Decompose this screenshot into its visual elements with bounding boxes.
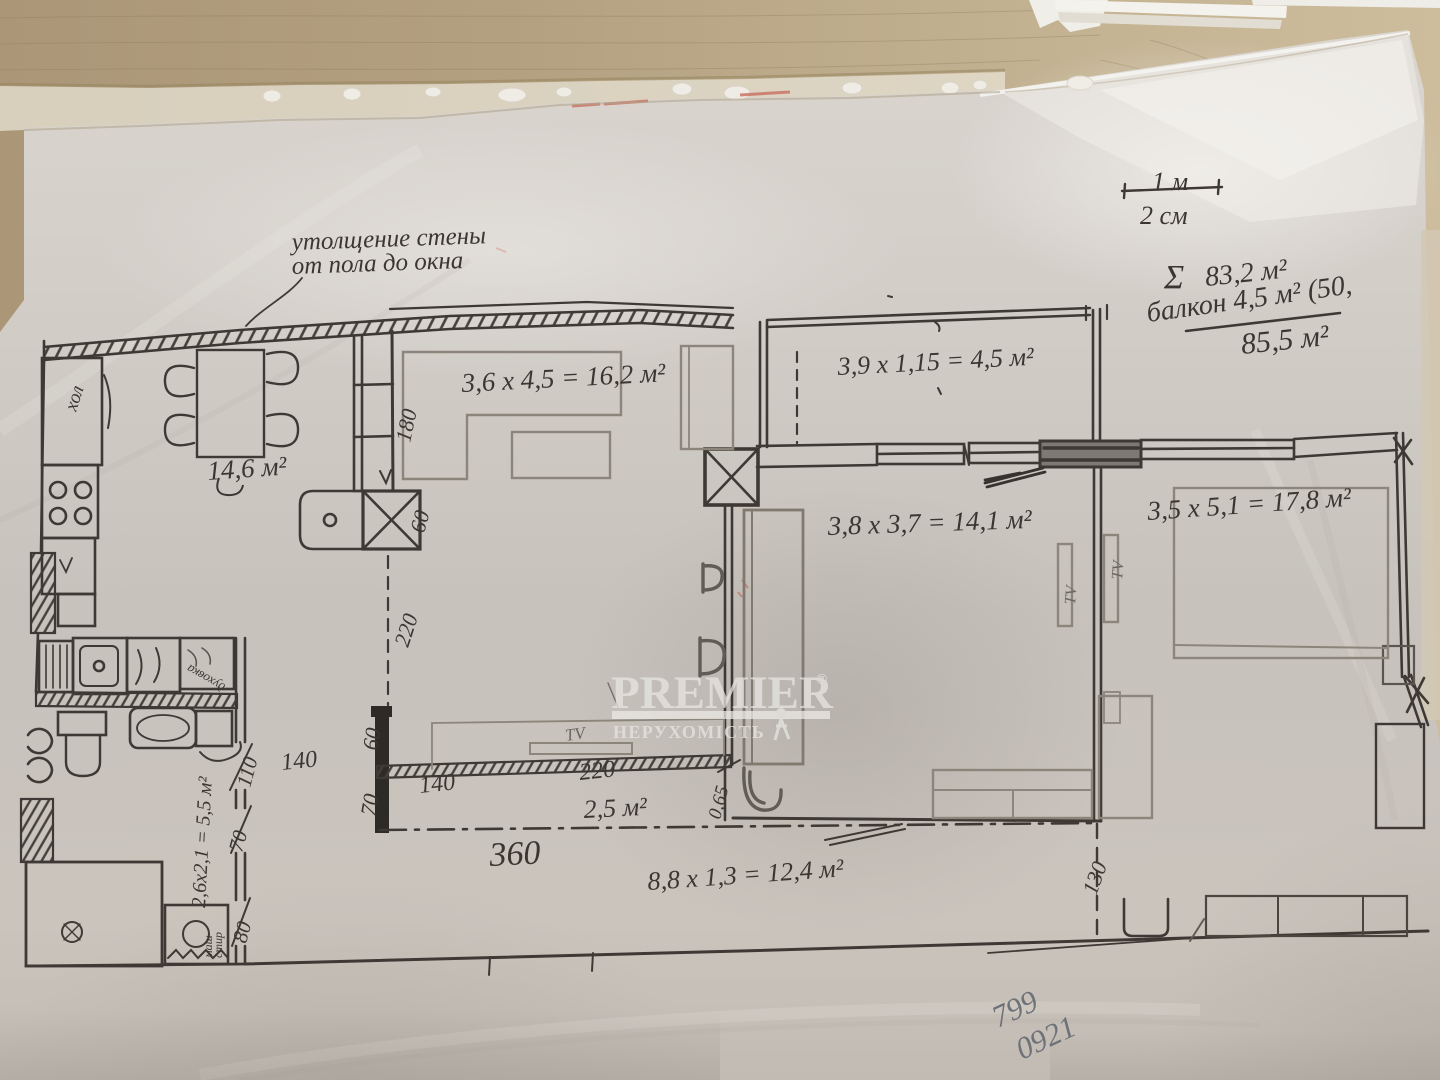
svg-text:140: 140 [280,746,319,776]
svg-text:70: 70 [355,792,383,818]
svg-text:1 м: 1 м [1152,167,1188,196]
svg-text:2,5 м²: 2,5 м² [583,792,649,824]
svg-text:220: 220 [578,756,617,786]
svg-text:140: 140 [418,769,457,799]
svg-text:маш: маш [201,935,215,959]
svg-text:60: 60 [357,726,385,752]
svg-text:®: ® [816,672,827,688]
svg-text:Σ: Σ [1163,259,1184,296]
svg-text:360: 360 [487,834,541,874]
svg-text:2 см: 2 см [1140,201,1188,230]
svg-text:НЕРУХОМІСТЬ: НЕРУХОМІСТЬ [613,722,765,742]
